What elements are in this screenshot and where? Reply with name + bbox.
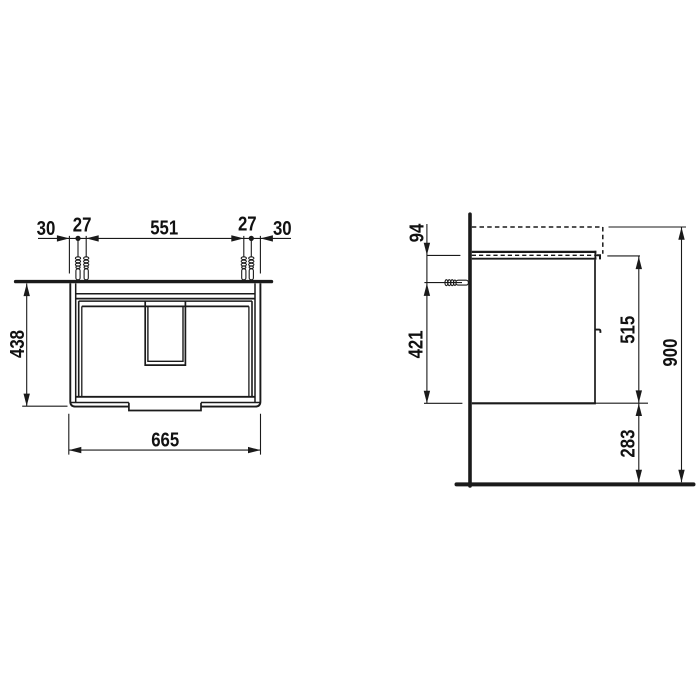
svg-text:283: 283: [616, 430, 639, 458]
svg-text:94: 94: [405, 223, 428, 242]
svg-text:27: 27: [73, 213, 92, 236]
svg-text:30: 30: [273, 216, 292, 239]
svg-text:30: 30: [37, 216, 56, 239]
svg-text:27: 27: [238, 212, 257, 235]
svg-text:421: 421: [404, 330, 427, 358]
svg-text:665: 665: [151, 428, 179, 451]
svg-text:551: 551: [150, 216, 178, 239]
svg-text:438: 438: [6, 330, 29, 358]
svg-text:515: 515: [616, 316, 639, 344]
svg-text:900: 900: [658, 339, 681, 367]
